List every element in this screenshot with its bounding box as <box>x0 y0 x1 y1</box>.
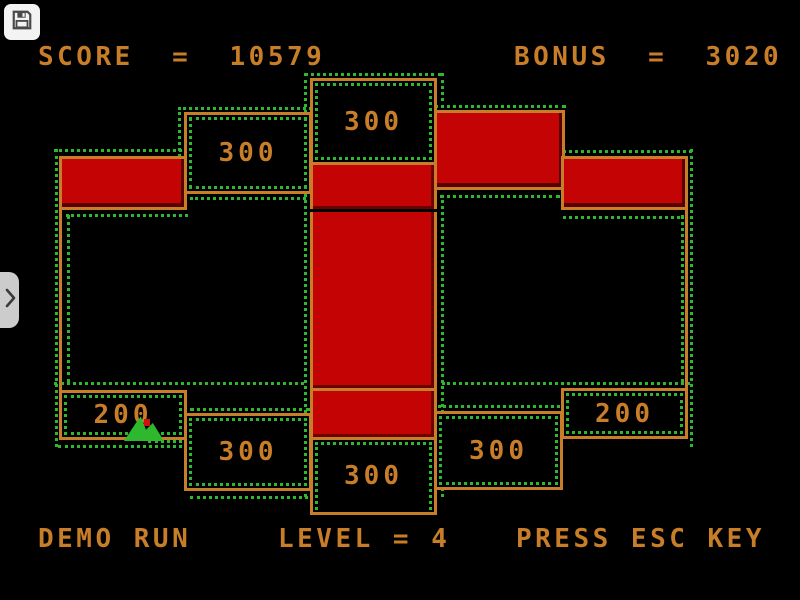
marching-ants-line <box>190 197 306 200</box>
floppy-disk-icon <box>11 9 33 35</box>
score-box-bottom-left: 300 <box>184 413 312 491</box>
score-box-value: 200 <box>595 399 654 429</box>
save-state-button[interactable] <box>4 4 40 40</box>
marching-ants-line <box>66 214 188 217</box>
claimed-red-column-top <box>310 165 437 209</box>
claimed-red-block-upper-right <box>434 110 565 190</box>
game-screen: SCORE = 10579 BONUS = 3020 300 300 <box>0 0 800 600</box>
marching-ants-line <box>438 405 560 408</box>
chevron-right-icon <box>3 283 17 317</box>
marching-ants-line <box>178 107 312 110</box>
marching-ants-line <box>556 150 692 153</box>
marching-ants-line <box>563 216 680 219</box>
marching-ants-line <box>440 195 560 198</box>
marching-ants-line <box>442 382 690 385</box>
score-box-upper-left: 300 <box>184 112 312 194</box>
player-sprite-eye <box>144 419 150 426</box>
marching-ants-line <box>681 215 684 383</box>
score-box-value: 300 <box>219 437 278 467</box>
demo-run-text: DEMO RUN <box>38 527 191 551</box>
sidebar-toggle-tab[interactable] <box>0 272 19 328</box>
claimed-red-block-right <box>561 156 688 210</box>
marching-ants-line <box>690 149 693 447</box>
marching-ants-line <box>54 149 188 152</box>
marching-ants-line <box>441 73 444 108</box>
marching-ants-line <box>190 496 308 499</box>
marching-ants-line <box>67 215 70 383</box>
score-box-value: 300 <box>344 461 403 491</box>
marching-ants-line <box>190 408 310 411</box>
level-text: LEVEL = 4 <box>278 527 450 551</box>
marching-ants-line <box>58 445 188 448</box>
score-text: SCORE = 10579 <box>38 45 325 69</box>
score-box-value: 300 <box>469 436 528 466</box>
score-box-right-200: 200 <box>561 388 688 439</box>
score-box-bottom-right: 300 <box>434 411 563 490</box>
press-esc-text: PRESS ESC KEY <box>516 527 765 551</box>
territory-wall-right <box>685 208 688 390</box>
claimed-red-block-left <box>59 156 187 210</box>
score-box-left-200: 200 <box>59 390 187 440</box>
marching-ants-line <box>304 73 442 76</box>
score-box-top-center: 300 <box>310 78 437 165</box>
territory-wall-left <box>59 208 62 392</box>
claimed-red-column-bottom <box>310 391 437 437</box>
score-box-bottom-center: 300 <box>310 437 437 515</box>
score-box-value: 300 <box>219 138 278 168</box>
score-box-value: 300 <box>344 107 403 137</box>
bonus-text: BONUS = 3020 <box>514 45 782 69</box>
claimed-red-column-main <box>310 212 437 391</box>
marching-ants-line <box>55 149 58 447</box>
player-sprite <box>124 416 164 441</box>
marching-ants-line <box>428 105 566 108</box>
marching-ants-line <box>54 382 304 385</box>
